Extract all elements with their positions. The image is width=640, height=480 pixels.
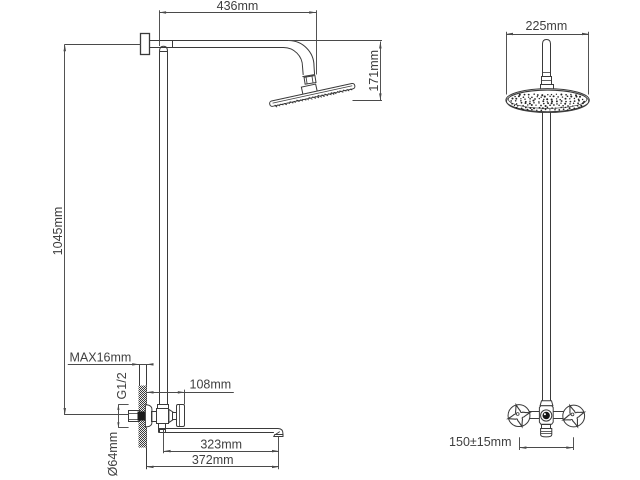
svg-text:323mm: 323mm [200,437,242,451]
svg-text:Ø64mm: Ø64mm [106,432,120,476]
svg-text:171mm: 171mm [367,50,381,92]
svg-text:436mm: 436mm [217,0,259,13]
svg-text:108mm: 108mm [190,378,232,392]
svg-text:MAX16mm: MAX16mm [70,351,132,365]
svg-text:225mm: 225mm [526,19,568,33]
svg-text:150±15mm: 150±15mm [449,435,511,449]
svg-text:372mm: 372mm [192,453,234,467]
svg-text:G1/2: G1/2 [115,372,129,399]
svg-text:1045mm: 1045mm [51,207,65,256]
